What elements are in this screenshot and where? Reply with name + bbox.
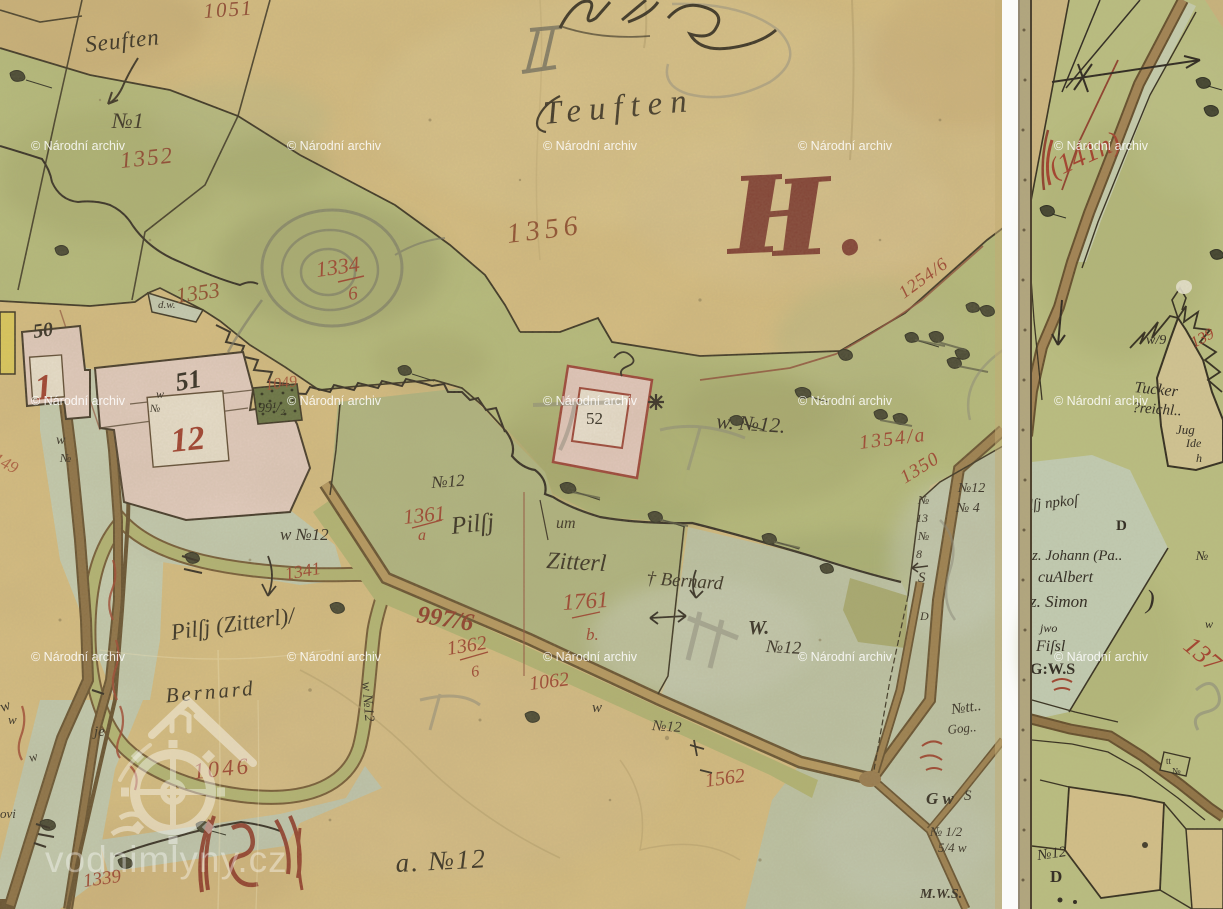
svg-text:© Národní archiv: © Národní archiv (1054, 650, 1149, 664)
svg-text:© Národní archiv: © Národní archiv (798, 394, 893, 408)
svg-text:© Národní archiv: © Národní archiv (31, 139, 126, 153)
svg-text:© Národní archiv: © Národní archiv (1054, 394, 1149, 408)
svg-text:© Národní archiv: © Národní archiv (287, 139, 382, 153)
svg-text:© Národní archiv: © Národní archiv (543, 139, 638, 153)
svg-text:vodnimlyny.cz: vodnimlyny.cz (45, 839, 288, 880)
svg-text:© Národní archiv: © Národní archiv (798, 650, 893, 664)
svg-text:© Národní archiv: © Národní archiv (31, 394, 126, 408)
svg-text:© Národní archiv: © Národní archiv (543, 394, 638, 408)
svg-text:© Národní archiv: © Národní archiv (543, 650, 638, 664)
svg-text:© Národní archiv: © Národní archiv (31, 650, 126, 664)
svg-text:© Národní archiv: © Národní archiv (287, 650, 382, 664)
svg-text:© Národní archiv: © Národní archiv (1054, 139, 1149, 153)
svg-text:© Národní archiv: © Národní archiv (287, 394, 382, 408)
svg-text:© Národní archiv: © Národní archiv (798, 139, 893, 153)
